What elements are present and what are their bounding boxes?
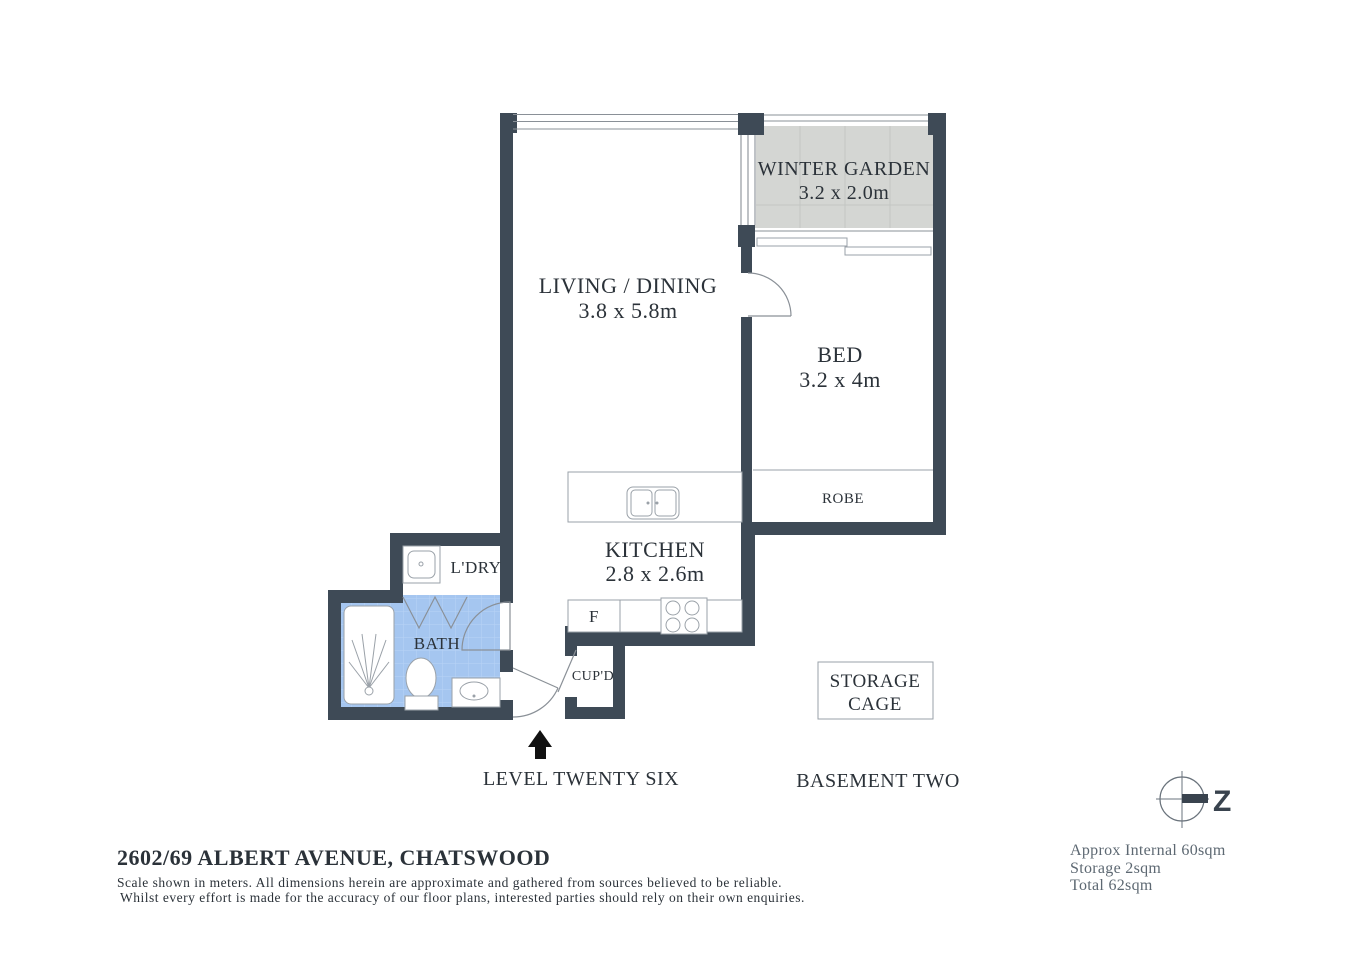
wall-bath-left xyxy=(328,590,341,720)
wall-cupboard-bottom xyxy=(565,707,625,719)
area-total: Total 62sqm xyxy=(1070,877,1153,894)
toilet xyxy=(405,658,438,710)
compass-needle-icon xyxy=(1182,794,1208,803)
bed-dims: 3.2 x 4m xyxy=(799,367,881,392)
window-top xyxy=(513,115,738,130)
cupboard-label: CUP'D xyxy=(572,669,614,684)
area-internal: Approx Internal 60sqm xyxy=(1070,842,1226,859)
winter-garden-label: WINTER GARDEN xyxy=(758,158,931,180)
cooktop xyxy=(661,598,707,634)
address-title: 2602/69 ALBERT AVENUE, CHATSWOOD xyxy=(117,845,550,870)
bed-label: BED xyxy=(817,342,863,367)
storage-cage-line1: STORAGE xyxy=(830,671,921,692)
wall-left xyxy=(500,113,513,603)
sink-tap-dot-right xyxy=(656,502,659,505)
toilet-cistern xyxy=(405,696,438,710)
area-storage: Storage 2sqm xyxy=(1070,860,1161,877)
laundry-label: L'DRY xyxy=(451,558,502,577)
winter-garden-top-glazing xyxy=(764,115,928,121)
north-entry-arrow-icon xyxy=(528,730,552,759)
winter-garden-dims: 3.2 x 2.0m xyxy=(799,182,890,204)
bath-label: BATH xyxy=(414,634,460,653)
wall-entry-jamb xyxy=(500,650,513,672)
basement-label: BASEMENT TWO xyxy=(796,770,960,792)
level-label: LEVEL TWENTY SIX xyxy=(483,768,679,790)
kitchen-dims: 2.8 x 2.6m xyxy=(605,561,704,586)
entry-door-arc xyxy=(513,688,558,717)
wall-kitchen-bottom xyxy=(565,632,755,646)
bed-door-arc xyxy=(748,273,791,316)
wall-laundry-left xyxy=(390,533,403,595)
footer-text: 2602/69 ALBERT AVENUE, CHATSWOOD Scale s… xyxy=(117,845,805,905)
wall-bed-left-upper xyxy=(741,247,752,273)
wall-kitchen-right xyxy=(741,535,755,632)
area-summary: Approx Internal 60sqm Storage 2sqm Total… xyxy=(1070,842,1226,894)
living-dining-dims: 3.8 x 5.8m xyxy=(578,298,677,323)
shower xyxy=(344,606,394,704)
floor-plan-page: WINTER GARDEN 3.2 x 2.0m LIVING / DINING… xyxy=(0,0,1358,960)
toilet-bowl xyxy=(406,658,436,698)
sliding-panel-right xyxy=(845,247,931,255)
wall-laundry-top xyxy=(390,533,513,546)
wall-right xyxy=(933,113,946,535)
fridge-label: F xyxy=(589,607,599,626)
shower-drain-icon xyxy=(365,687,373,695)
disclaimer-line2: Whilst every effort is made for the accu… xyxy=(120,890,805,905)
basin-drain-dot xyxy=(473,695,476,698)
wall-cupboard-jamb-bottom xyxy=(565,697,577,707)
wall-bed-corner-post xyxy=(738,225,755,247)
compass: Z xyxy=(1156,771,1231,828)
vanity xyxy=(452,678,500,707)
window-top-glazing xyxy=(513,115,738,130)
compass-north-glyph: Z xyxy=(1213,785,1231,818)
wall-bed-bottom xyxy=(741,522,946,535)
disclaimer-line1: Scale shown in meters. All dimensions he… xyxy=(117,875,782,890)
floor-plan-canvas: WINTER GARDEN 3.2 x 2.0m LIVING / DINING… xyxy=(0,0,1358,960)
wall-top-mid-post xyxy=(738,113,764,135)
storage-cage-line2: CAGE xyxy=(848,694,902,715)
laundry-tub-outer xyxy=(403,546,440,583)
entry-door-leaf xyxy=(513,668,558,688)
living-dining-label: LIVING / DINING xyxy=(539,273,718,298)
storage-cage: STORAGE CAGE xyxy=(818,662,933,719)
sliding-panel-left xyxy=(757,238,847,246)
robe-label: ROBE xyxy=(822,491,864,507)
room-laundry xyxy=(403,546,440,583)
kitchen-label: KITCHEN xyxy=(605,537,705,562)
sink-tap-dot-left xyxy=(647,502,650,505)
wall-bed-left-lower xyxy=(741,317,752,522)
